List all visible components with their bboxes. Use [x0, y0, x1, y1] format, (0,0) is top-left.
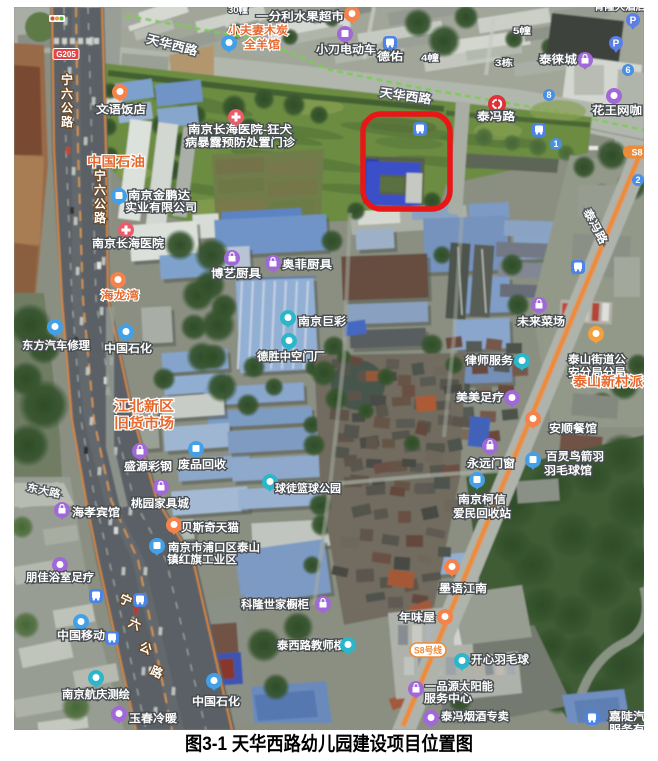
svg-text:南京柯信: 南京柯信: [458, 492, 506, 506]
svg-text:南京航庆测绘: 南京航庆测绘: [62, 687, 130, 701]
svg-text:安顺餐馆: 安顺餐馆: [549, 421, 597, 435]
svg-text:六: 六: [94, 182, 106, 197]
svg-text:南京金鹏达: 南京金鹏达: [128, 188, 190, 202]
svg-text:服务中心: 服务中心: [424, 691, 472, 705]
svg-text:南京巨彩: 南京巨彩: [298, 314, 346, 328]
svg-text:泰冯路: 泰冯路: [476, 109, 516, 123]
svg-text:小夫妻木炭: 小夫妻木炭: [227, 23, 288, 37]
svg-text:南京长海医院-狂犬: 南京长海医院-狂犬: [188, 122, 293, 136]
svg-text:泰冯烟酒专卖: 泰冯烟酒专卖: [440, 709, 509, 723]
svg-text:中国石化: 中国石化: [104, 341, 152, 355]
svg-text:S8: S8: [631, 148, 642, 158]
svg-text:玉春冷暖: 玉春冷暖: [129, 711, 178, 725]
svg-text:盛源彩钢: 盛源彩钢: [124, 459, 172, 473]
svg-text:中国移动: 中国移动: [57, 628, 105, 642]
svg-text:青隆大酒店: 青隆大酒店: [594, 7, 644, 13]
svg-text:中国石油: 中国石油: [87, 154, 145, 169]
svg-text:海孝宾馆: 海孝宾馆: [72, 505, 120, 519]
svg-text:爱民回收站: 爱民回收站: [453, 506, 511, 520]
svg-text:一品源太阳能: 一品源太阳能: [425, 679, 493, 693]
svg-text:泰山新村派: 泰山新村派: [572, 374, 644, 389]
svg-text:8: 8: [546, 90, 551, 100]
svg-text:美美足疗: 美美足疗: [456, 390, 504, 404]
svg-text:路: 路: [61, 114, 74, 129]
svg-text:6: 6: [625, 65, 630, 75]
svg-text:图3-1 天华西路幼儿园建设项目位置图: 图3-1 天华西路幼儿园建设项目位置图: [185, 732, 473, 755]
svg-text:南京长海医院: 南京长海医院: [92, 236, 164, 250]
svg-text:德佑: 德佑: [376, 49, 403, 63]
svg-text:球徒篮球公园: 球徒篮球公园: [275, 481, 341, 495]
svg-text:文语饭店: 文语饭店: [96, 102, 146, 116]
svg-text:公: 公: [94, 197, 106, 211]
svg-text:江北新区: 江北新区: [114, 398, 174, 414]
svg-text:年味屋: 年味屋: [399, 610, 435, 624]
svg-text:服务有限: 服务有限: [609, 722, 644, 730]
svg-text:朋佳浴室足疗: 朋佳浴室足疗: [25, 570, 94, 584]
svg-text:海龙湾: 海龙湾: [101, 288, 139, 302]
svg-text:奥菲厨具: 奥菲厨具: [281, 257, 332, 271]
svg-text:贝斯奇天猫: 贝斯奇天猫: [181, 520, 239, 534]
svg-text:P: P: [630, 16, 637, 27]
svg-text:1: 1: [553, 139, 558, 149]
svg-text:博艺厨具: 博艺厨具: [211, 266, 261, 280]
svg-text:泰山街道公: 泰山街道公: [567, 352, 626, 366]
svg-text:律师服务: 律师服务: [464, 353, 514, 367]
svg-text:P: P: [613, 39, 620, 50]
svg-text:六: 六: [61, 86, 73, 101]
svg-text:开心羽毛球: 开心羽毛球: [471, 652, 530, 666]
svg-text:小刀电动车: 小刀电动车: [315, 42, 376, 56]
svg-text:5幢: 5幢: [513, 25, 531, 36]
svg-text:羽毛球馆: 羽毛球馆: [544, 463, 592, 477]
svg-text:实业有限公司: 实业有限公司: [125, 200, 197, 214]
svg-text:桃园家具城: 桃园家具城: [131, 496, 189, 510]
svg-text:G205: G205: [56, 50, 76, 59]
svg-text:2: 2: [635, 175, 640, 185]
svg-text:宁: 宁: [94, 168, 106, 183]
svg-text:3栋: 3栋: [495, 57, 513, 68]
svg-text:南京市浦口区泰山: 南京市浦口区泰山: [168, 540, 260, 554]
svg-text:科隆世家橱柜: 科隆世家橱柜: [241, 597, 309, 611]
svg-text:30幢: 30幢: [228, 7, 248, 15]
svg-text:东方汽车修理: 东方汽车修理: [22, 338, 90, 352]
svg-text:墨语江南: 墨语江南: [439, 581, 487, 595]
svg-text:旧货市场: 旧货市场: [114, 415, 174, 431]
svg-text:路: 路: [94, 210, 107, 225]
svg-text:花王网咖: 花王网咖: [592, 103, 642, 117]
svg-text:4幢: 4幢: [421, 52, 439, 63]
svg-text:中国石化: 中国石化: [192, 694, 240, 708]
svg-text:永远门窗: 永远门窗: [466, 456, 515, 470]
svg-text:病暴露预防处置门诊: 病暴露预防处置门诊: [185, 135, 296, 149]
svg-text:一分利水果超市: 一分利水果超市: [256, 9, 344, 23]
svg-text:S8号线: S8号线: [414, 645, 442, 656]
svg-text:全羊馆: 全羊馆: [243, 37, 280, 51]
svg-text:百灵鸟箭羽: 百灵鸟箭羽: [546, 449, 604, 463]
svg-text:泰西路教师楼: 泰西路教师楼: [276, 638, 345, 652]
svg-text:泰徕城: 泰徕城: [538, 52, 577, 66]
svg-text:废品回收: 废品回收: [178, 457, 226, 471]
svg-text:宁: 宁: [61, 72, 73, 87]
svg-text:嘉陡汽车: 嘉陡汽车: [608, 709, 644, 723]
svg-text:镇红旗工业区: 镇红旗工业区: [167, 552, 237, 566]
svg-text:未来菜场: 未来菜场: [516, 314, 565, 328]
svg-text:公: 公: [61, 101, 73, 115]
svg-text:德胜中空门厂: 德胜中空门厂: [256, 349, 325, 363]
